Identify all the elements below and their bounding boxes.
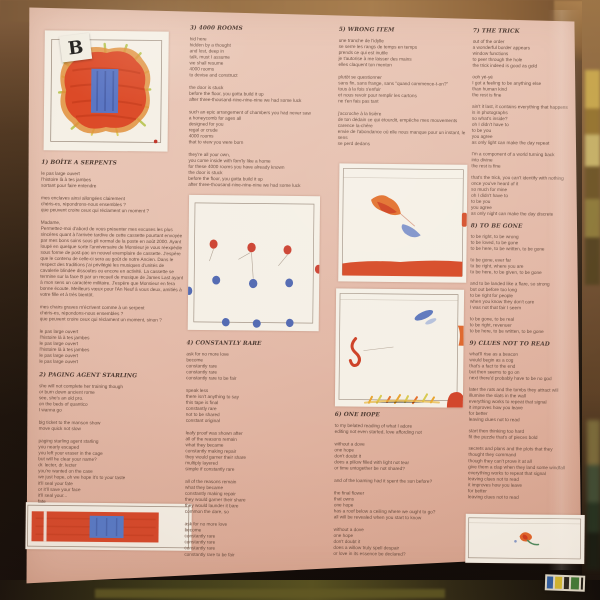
song-2-title: 2) PAGING AGENT STARLING xyxy=(39,371,182,380)
song-7-stanza: ain't it last, it contains everything th… xyxy=(472,103,598,146)
column-1: 1) BOÎTE A SERPENTS le pas large ouvert … xyxy=(38,158,185,512)
song-7-stanza: I'm a component of a world turning back … xyxy=(471,151,597,170)
green-tail xyxy=(527,540,538,544)
photo-scene: B xyxy=(0,0,600,600)
pencil-frame xyxy=(339,293,458,400)
pencil-line xyxy=(343,177,463,178)
song-4-stanza: speak less there isn't anything to say t… xyxy=(186,387,322,425)
song-9-stanza: later the rats and the tombs they attrac… xyxy=(469,386,595,423)
song-2-stanza: she will not complete her training thoug… xyxy=(39,383,182,415)
red-dots xyxy=(209,239,320,273)
song-3-stanza: they're all your own, you come inside wi… xyxy=(188,151,324,189)
blue-streak xyxy=(402,224,421,237)
pencil-line xyxy=(340,299,458,300)
pencil-frame xyxy=(194,203,314,323)
song-8-stanza: to be gone, ever far to be right, where … xyxy=(470,257,596,276)
song-4-stanza: all of the reasons remain what they beca… xyxy=(185,478,321,516)
blue-streak-tail xyxy=(424,317,437,326)
song-7-title: 7) THE TRICK xyxy=(473,27,599,36)
song-8-title: 8) TO BE GONE xyxy=(471,222,597,231)
song-1-stanza: le pas large ouvert l'histoire là à tes … xyxy=(41,170,184,190)
red-corner-blob xyxy=(447,392,463,408)
song-5-stanza: plutôt se questionner sans fin, sans fra… xyxy=(338,74,471,105)
song-2-stanza: big ticket to the manson show move quick… xyxy=(39,419,182,433)
song-1-letter: Madame, Permettez-moi d'abord de vous pr… xyxy=(40,219,184,299)
song-8-stanza: to be right, to be wrong to be loved, to… xyxy=(471,233,597,252)
painting-dots-art xyxy=(188,195,320,331)
orange-edge-smear xyxy=(458,326,464,346)
song-6-stanza: and of the loaming had it spent the sun … xyxy=(334,477,469,484)
painting-dots xyxy=(188,195,320,331)
song-6-stanza: the final flower that owns one hope has … xyxy=(334,490,469,521)
column-4: 7) THE TRICK out of the order a wonderfu… xyxy=(468,27,599,507)
song-6-title: 6) ONE HOPE xyxy=(335,410,470,419)
painting-small-squiggle xyxy=(465,514,585,564)
pencil-lines xyxy=(209,249,287,279)
painting-flame-art xyxy=(338,163,467,282)
song-4-stanza: ask for no more love become constantly r… xyxy=(186,351,322,383)
column-3-lower: 6) ONE HOPE to my belated reading of wha… xyxy=(333,410,470,564)
side-b-letter: B xyxy=(67,36,85,59)
song-5-stanza: j'accroche à la lisière de ton dédain ce… xyxy=(338,110,471,147)
song-3-title: 3) 4000 ROOMS xyxy=(190,24,326,33)
red-bottom-band xyxy=(342,260,462,277)
song-9-stanza: start then thinking too hard fit the puz… xyxy=(469,428,595,441)
painting-small-squiggle-art xyxy=(465,514,585,564)
painting-shore xyxy=(335,288,464,407)
song-9-title: 9) CLUES NOT TO READ xyxy=(470,339,596,348)
blue-dots xyxy=(188,275,294,328)
song-1-stanza: mes chairs graves m'écrivent comme à un … xyxy=(40,304,183,324)
painting-shore-art xyxy=(335,288,464,407)
song-3-stanza: the door is stuck before the floor, you … xyxy=(189,84,325,103)
song-5-stanza: une tranche de l'idylle se serre les ran… xyxy=(338,37,471,68)
column-2-upper: 3) 4000 ROOMS hid here hidden by a thoug… xyxy=(188,24,326,196)
song-4-stanza: leafy proof was shown after all of the r… xyxy=(185,430,321,474)
song-5-title: 5) WRONG ITEM xyxy=(339,25,472,34)
pencil-frame xyxy=(342,168,463,275)
column-3-upper: 5) WRONG ITEM une tranche de l'idylle se… xyxy=(338,25,472,154)
column-2-lower: 4) CONSTANTLY RARE ask for no more love … xyxy=(184,339,322,565)
song-7-stanza: ooh yé-yé I got a feeling to be anything… xyxy=(472,74,598,99)
painting-flame xyxy=(338,163,467,282)
red-edge-sliver xyxy=(462,213,467,227)
song-7-stanza: that's the trick, you can't identify wit… xyxy=(471,174,597,217)
pencil-line xyxy=(469,523,581,524)
song-4-stanza: ask for no more love become constantly r… xyxy=(184,521,320,559)
song-1-stanza: le pas large ouvert l'histoire là à tes … xyxy=(39,328,182,366)
song-8-stanza: to be gone, to be real to be right, reve… xyxy=(470,316,596,335)
song-1-title: 1) BOÎTE A SERPENTS xyxy=(41,158,184,167)
lyric-sheet-content: B xyxy=(0,0,600,600)
white-notch xyxy=(43,511,46,541)
song-9-stanza: secrets and plans and the plots that the… xyxy=(468,445,595,500)
song-2-stanza: paging starling agent starling you nearl… xyxy=(38,438,182,506)
song-6-stanza: to my belated reading of what I adore ed… xyxy=(335,422,470,435)
grass-strokes xyxy=(365,394,439,404)
pencil-mark xyxy=(363,347,393,351)
song-3-stanza: hid here hidden by a thought and lost, d… xyxy=(189,36,325,80)
song-3-stanza: such an epic arrangement of chambers you… xyxy=(189,109,325,147)
painting-snake-box: B xyxy=(44,30,169,151)
song-8-stanza: and to be landed like a flare, so strong… xyxy=(470,280,596,311)
red-squiggle xyxy=(350,339,359,366)
song-7-stanza: out of the order a wonderful border appe… xyxy=(472,38,598,69)
song-1-stanza: mes enclaves ainsi allongées clairement … xyxy=(41,195,184,215)
song-6-stanza: without a dove one hope don't doubt it d… xyxy=(334,441,469,472)
song-4-title: 4) CONSTANTLY RARE xyxy=(187,339,323,348)
song-9-stanza: what'll rise as a beacon would begin as … xyxy=(469,351,595,382)
side-b-label: B xyxy=(59,33,92,63)
blue-speck xyxy=(514,540,517,543)
song-6-stanza: without a dove one hope don't doubt it d… xyxy=(333,526,468,557)
